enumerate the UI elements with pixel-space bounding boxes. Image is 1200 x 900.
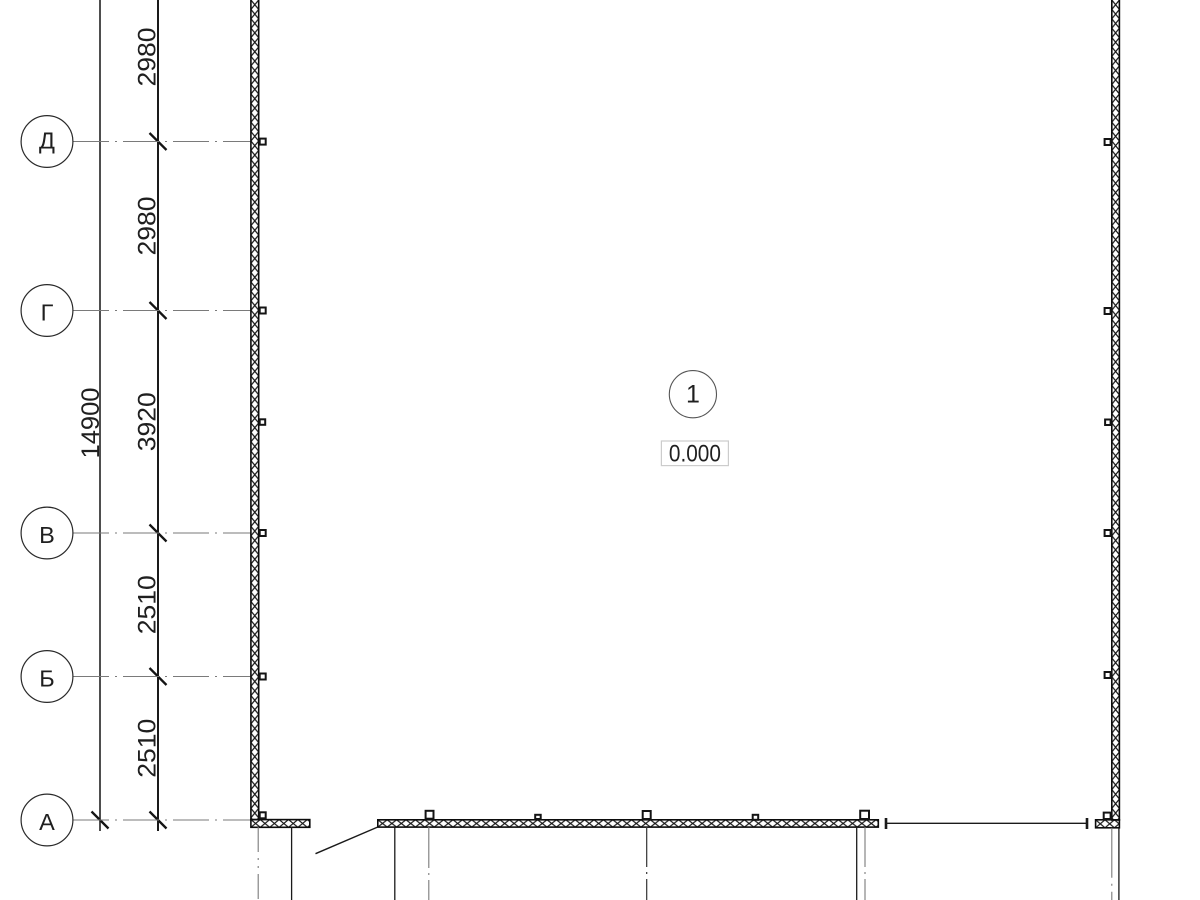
svg-text:1: 1 xyxy=(686,381,700,409)
svg-text:2980: 2980 xyxy=(134,197,162,256)
svg-text:Г: Г xyxy=(41,300,54,326)
svg-text:14900: 14900 xyxy=(77,388,105,459)
svg-text:В: В xyxy=(39,522,55,548)
svg-text:Б: Б xyxy=(39,666,54,692)
svg-text:2510: 2510 xyxy=(134,575,162,634)
svg-text:Д: Д xyxy=(39,127,55,153)
svg-text:2510: 2510 xyxy=(134,719,162,778)
svg-text:А: А xyxy=(39,809,55,835)
svg-text:3920: 3920 xyxy=(134,392,162,451)
svg-text:2980: 2980 xyxy=(134,28,162,87)
svg-text:0.000: 0.000 xyxy=(669,441,721,468)
